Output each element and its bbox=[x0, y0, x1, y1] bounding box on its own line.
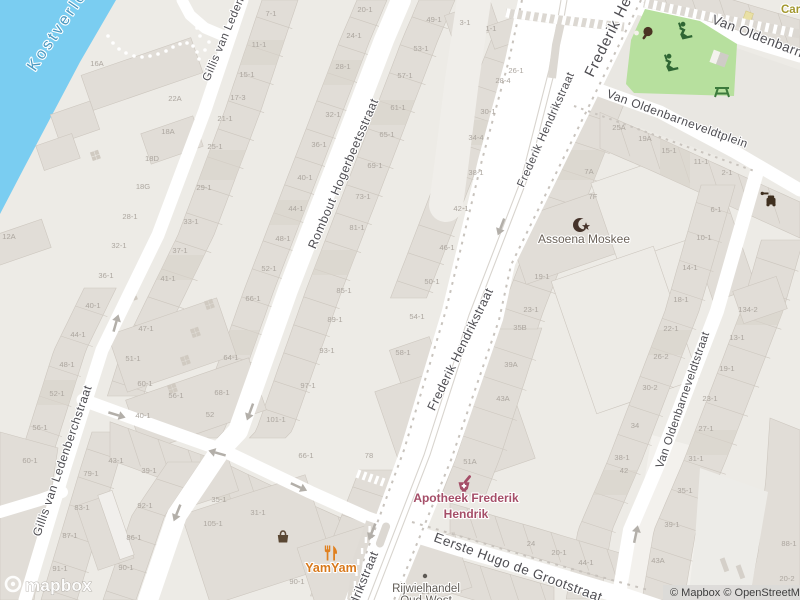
svg-text:22-1: 22-1 bbox=[663, 324, 678, 333]
svg-text:10-1: 10-1 bbox=[696, 233, 711, 242]
svg-text:40-1: 40-1 bbox=[85, 301, 100, 310]
svg-text:85-1: 85-1 bbox=[336, 286, 351, 295]
svg-text:24: 24 bbox=[527, 539, 535, 548]
svg-text:66-1: 66-1 bbox=[298, 451, 313, 460]
svg-text:28-1: 28-1 bbox=[335, 62, 350, 71]
svg-text:48-1: 48-1 bbox=[59, 360, 74, 369]
svg-text:49-1: 49-1 bbox=[426, 15, 441, 24]
svg-text:87-1: 87-1 bbox=[62, 531, 77, 540]
svg-text:52-1: 52-1 bbox=[49, 389, 64, 398]
svg-text:79-1: 79-1 bbox=[83, 469, 98, 478]
svg-text:25A: 25A bbox=[612, 123, 626, 132]
svg-text:2-1: 2-1 bbox=[722, 168, 733, 177]
svg-text:41-1: 41-1 bbox=[160, 274, 175, 283]
svg-text:34-4: 34-4 bbox=[468, 133, 483, 142]
svg-text:21-1: 21-1 bbox=[217, 114, 232, 123]
svg-text:Hendrik: Hendrik bbox=[444, 507, 489, 521]
svg-text:92-1: 92-1 bbox=[137, 501, 152, 510]
svg-text:33-1: 33-1 bbox=[183, 217, 198, 226]
svg-text:35B: 35B bbox=[513, 323, 527, 332]
svg-text:40-1: 40-1 bbox=[297, 173, 312, 182]
svg-text:23-1: 23-1 bbox=[702, 394, 717, 403]
svg-text:16A: 16A bbox=[90, 59, 104, 68]
svg-text:73-1: 73-1 bbox=[355, 192, 370, 201]
svg-text:42-1: 42-1 bbox=[453, 204, 468, 213]
svg-text:66-1: 66-1 bbox=[245, 294, 260, 303]
svg-text:44-1: 44-1 bbox=[288, 204, 303, 213]
svg-text:YamYam: YamYam bbox=[305, 561, 356, 575]
svg-text:52: 52 bbox=[206, 410, 214, 419]
svg-text:17-3: 17-3 bbox=[230, 93, 245, 102]
svg-text:18G: 18G bbox=[136, 182, 150, 191]
svg-text:37-1: 37-1 bbox=[172, 246, 187, 255]
svg-text:28-1: 28-1 bbox=[122, 212, 137, 221]
svg-text:43A: 43A bbox=[651, 556, 665, 565]
svg-text:89-1: 89-1 bbox=[327, 315, 342, 324]
svg-text:Rijwielhandel: Rijwielhandel bbox=[392, 583, 460, 595]
svg-text:18-1: 18-1 bbox=[673, 295, 688, 304]
svg-text:18D: 18D bbox=[145, 154, 159, 163]
svg-text:24-1: 24-1 bbox=[346, 31, 361, 40]
svg-text:28-4: 28-4 bbox=[495, 76, 510, 85]
svg-text:12A: 12A bbox=[2, 232, 16, 241]
svg-text:19-1: 19-1 bbox=[719, 364, 734, 373]
svg-text:7A: 7A bbox=[584, 167, 594, 176]
svg-text:65-1: 65-1 bbox=[379, 130, 394, 139]
svg-text:105-1: 105-1 bbox=[203, 519, 222, 528]
svg-text:34: 34 bbox=[631, 421, 639, 430]
svg-text:11-1: 11-1 bbox=[252, 40, 267, 49]
svg-text:93-1: 93-1 bbox=[319, 346, 334, 355]
svg-text:Oud-West: Oud-West bbox=[400, 595, 452, 600]
svg-text:31-1: 31-1 bbox=[688, 454, 703, 463]
svg-text:47-1: 47-1 bbox=[138, 324, 153, 333]
svg-text:14-1: 14-1 bbox=[682, 263, 697, 272]
svg-text:42: 42 bbox=[620, 466, 628, 475]
svg-text:56-1: 56-1 bbox=[32, 423, 47, 432]
svg-text:mapbox: mapbox bbox=[25, 576, 92, 595]
svg-text:11-1: 11-1 bbox=[694, 157, 709, 166]
svg-text:44-1: 44-1 bbox=[578, 558, 593, 567]
svg-text:7-1: 7-1 bbox=[266, 9, 277, 18]
svg-text:60-1: 60-1 bbox=[137, 379, 152, 388]
svg-text:18A: 18A bbox=[161, 127, 175, 136]
svg-text:29-1: 29-1 bbox=[196, 183, 211, 192]
svg-text:48-1: 48-1 bbox=[275, 234, 290, 243]
svg-text:15-1: 15-1 bbox=[661, 146, 676, 155]
svg-text:20-1: 20-1 bbox=[551, 548, 566, 557]
svg-text:Assoena Moskee: Assoena Moskee bbox=[538, 232, 630, 246]
svg-text:53-1: 53-1 bbox=[413, 44, 428, 53]
svg-text:7F: 7F bbox=[589, 192, 598, 201]
svg-text:50-1: 50-1 bbox=[424, 277, 439, 286]
svg-text:23-1: 23-1 bbox=[523, 305, 538, 314]
svg-text:57-1: 57-1 bbox=[397, 71, 412, 80]
svg-text:15-1: 15-1 bbox=[239, 70, 254, 79]
svg-text:83-1: 83-1 bbox=[74, 503, 89, 512]
svg-text:32-1: 32-1 bbox=[111, 241, 126, 250]
svg-text:58-1: 58-1 bbox=[395, 348, 410, 357]
svg-text:81-1: 81-1 bbox=[349, 223, 364, 232]
svg-text:38-1: 38-1 bbox=[468, 168, 483, 177]
svg-text:36-1: 36-1 bbox=[98, 271, 113, 280]
svg-text:1-1: 1-1 bbox=[486, 24, 497, 33]
svg-text:30-2: 30-2 bbox=[642, 383, 657, 392]
svg-text:90-1: 90-1 bbox=[118, 563, 133, 572]
svg-text:51A: 51A bbox=[463, 457, 477, 466]
svg-text:134-2: 134-2 bbox=[738, 305, 757, 314]
svg-text:39-1: 39-1 bbox=[664, 520, 679, 529]
svg-text:97-1: 97-1 bbox=[300, 381, 315, 390]
svg-text:39-1: 39-1 bbox=[141, 466, 156, 475]
svg-text:36-1: 36-1 bbox=[311, 140, 326, 149]
svg-text:51-1: 51-1 bbox=[125, 354, 140, 363]
svg-text:31-1: 31-1 bbox=[250, 508, 265, 517]
svg-text:88-1: 88-1 bbox=[781, 539, 796, 548]
svg-text:30-1: 30-1 bbox=[480, 107, 495, 116]
svg-text:68-1: 68-1 bbox=[214, 388, 229, 397]
svg-text:3-1: 3-1 bbox=[460, 18, 471, 27]
svg-text:22A: 22A bbox=[168, 94, 182, 103]
svg-text:46-1: 46-1 bbox=[439, 243, 454, 252]
svg-text:19A: 19A bbox=[638, 134, 652, 143]
svg-text:39A: 39A bbox=[504, 360, 518, 369]
svg-text:69-1: 69-1 bbox=[367, 161, 382, 170]
svg-text:91-1: 91-1 bbox=[52, 564, 67, 573]
svg-text:35-1: 35-1 bbox=[211, 495, 226, 504]
svg-text:38-1: 38-1 bbox=[614, 453, 629, 462]
svg-text:40-1: 40-1 bbox=[135, 411, 150, 420]
svg-text:56-1: 56-1 bbox=[168, 391, 183, 400]
svg-text:6-1: 6-1 bbox=[711, 205, 722, 214]
svg-text:19-1: 19-1 bbox=[534, 272, 549, 281]
svg-text:52-1: 52-1 bbox=[261, 264, 276, 273]
svg-text:101-1: 101-1 bbox=[266, 415, 285, 424]
svg-text:26-2: 26-2 bbox=[653, 352, 668, 361]
svg-text:90-1: 90-1 bbox=[289, 577, 304, 586]
svg-text:86-1: 86-1 bbox=[126, 533, 141, 542]
svg-text:13-1: 13-1 bbox=[729, 333, 744, 342]
svg-text:26-1: 26-1 bbox=[508, 66, 523, 75]
svg-text:43A: 43A bbox=[496, 394, 510, 403]
svg-text:44-1: 44-1 bbox=[70, 330, 85, 339]
svg-text:20-2: 20-2 bbox=[779, 574, 794, 583]
svg-text:20-1: 20-1 bbox=[357, 5, 372, 14]
svg-text:27-1: 27-1 bbox=[698, 424, 713, 433]
svg-text:61-1: 61-1 bbox=[390, 103, 405, 112]
svg-text:© Mapbox © OpenStreetMap: © Mapbox © OpenStreetMap bbox=[670, 587, 800, 599]
svg-text:54-1: 54-1 bbox=[409, 312, 424, 321]
svg-text:43-1: 43-1 bbox=[108, 456, 123, 465]
svg-text:Carwash: Carwash bbox=[781, 4, 800, 16]
svg-text:64-1: 64-1 bbox=[223, 353, 238, 362]
svg-text:60-1: 60-1 bbox=[22, 456, 37, 465]
svg-text:Apotheek Frederik: Apotheek Frederik bbox=[413, 491, 519, 505]
svg-text:35-1: 35-1 bbox=[677, 486, 692, 495]
svg-text:78: 78 bbox=[365, 451, 373, 460]
svg-text:32-1: 32-1 bbox=[325, 110, 340, 119]
svg-text:25-1: 25-1 bbox=[207, 142, 222, 151]
